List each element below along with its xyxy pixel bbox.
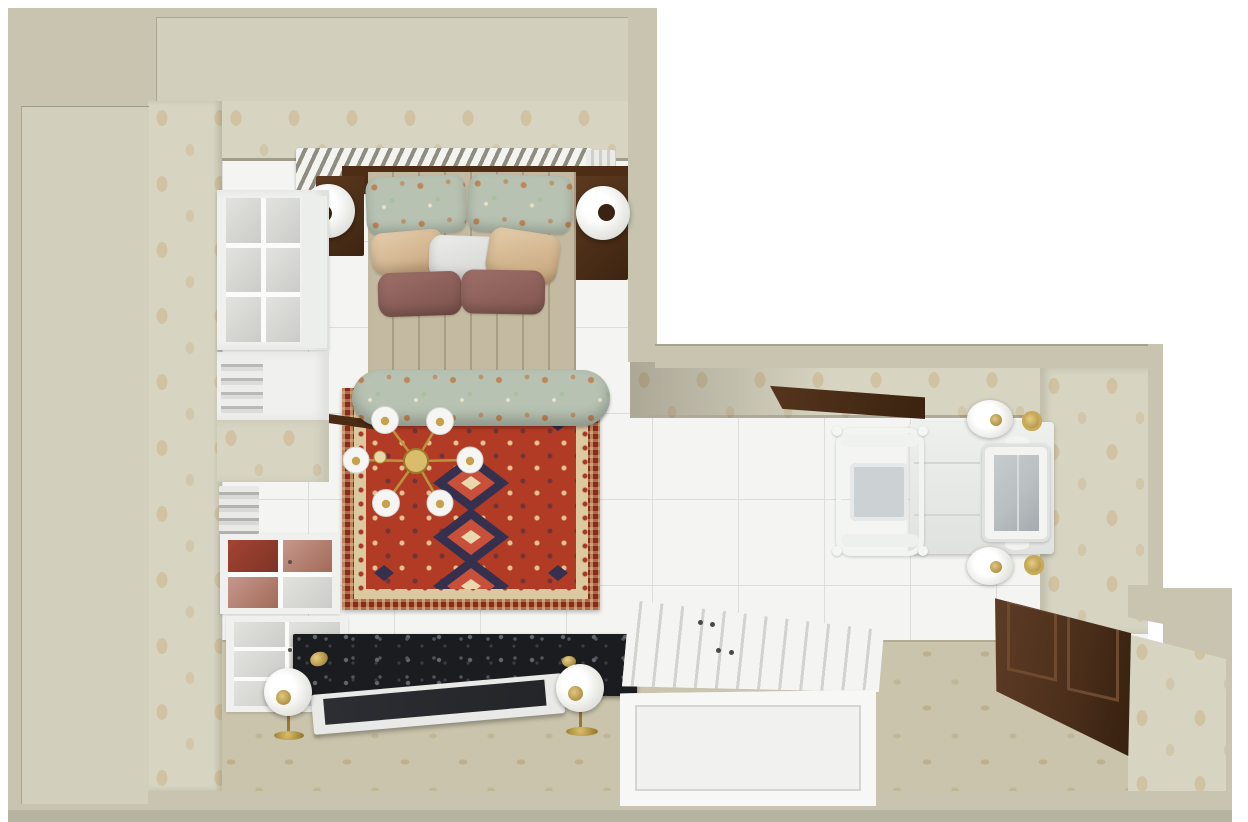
vanity-mirror-glass	[994, 455, 1039, 531]
glass-pane	[228, 577, 278, 609]
vanity-wall-lamp-upper	[967, 400, 1013, 438]
bedroom-left-wallpaper	[148, 100, 222, 791]
cabinet-panel	[1007, 600, 1057, 682]
rug-corner-motif	[374, 565, 394, 581]
chair-finial	[918, 426, 928, 436]
glass-pane	[234, 622, 285, 647]
red-cabinet-glass-grid	[228, 540, 332, 608]
hutch-side-panel	[302, 196, 327, 348]
upholstered-panel	[217, 420, 329, 482]
brass-sconce-plate	[1022, 411, 1042, 431]
floor-plan-render	[0, 0, 1248, 822]
daybed-knob	[729, 650, 734, 655]
chandelier-ball	[374, 451, 386, 463]
rug-corner-motif	[548, 565, 568, 581]
bedside-lamp-right	[576, 186, 630, 240]
vanity-chair	[836, 428, 924, 556]
pillow-floral-left	[365, 174, 467, 235]
glass-pane	[226, 297, 261, 342]
outer-wall-right	[1148, 344, 1163, 590]
exterior-background-top-right	[657, 0, 1248, 344]
pillow-floral-right	[467, 173, 573, 235]
chair-front	[841, 534, 919, 547]
folded-towels	[221, 357, 263, 415]
daybed-knob	[716, 648, 721, 653]
floor-lamp-right	[556, 664, 604, 712]
exterior-background-bottom-right	[1232, 588, 1248, 822]
exterior-background-right	[1163, 344, 1248, 588]
glass-pane	[226, 198, 261, 243]
bedroom-right-wall	[628, 8, 657, 362]
daybed-knob	[710, 622, 715, 627]
glass-pane	[228, 540, 278, 572]
rug-medallion	[433, 557, 509, 589]
pillow-mauve-right	[461, 269, 546, 314]
pillow-mauve-left	[377, 271, 462, 318]
glass-pane	[266, 198, 301, 243]
floor-lamp-base	[274, 731, 304, 740]
outer-wall-left-panel	[21, 106, 149, 804]
glass-pane	[283, 540, 333, 572]
chair-finial	[918, 546, 928, 556]
chair-back	[841, 434, 919, 447]
outer-wall-bottom-edge	[8, 810, 1232, 822]
floor-lamp-left	[264, 668, 312, 716]
chair-finial	[832, 546, 842, 556]
chandelier-hub	[404, 449, 428, 473]
cabinet-knob	[288, 648, 292, 652]
glass-pane	[266, 297, 301, 342]
daybed-front	[620, 690, 876, 806]
outer-wall-top-panel	[156, 17, 636, 101]
cabinet-knob	[288, 560, 292, 564]
chair-finial	[832, 426, 842, 436]
chandelier	[330, 393, 500, 523]
folded-towels	[219, 486, 259, 534]
floor-lamp-base	[566, 727, 598, 736]
chair-cushion	[850, 463, 908, 521]
daybed-knob	[698, 620, 703, 625]
vanity-wall-lamp-lower	[967, 547, 1013, 585]
brass-sconce-plate	[1024, 555, 1044, 575]
glass-pane	[226, 248, 261, 293]
glass-pane	[266, 248, 301, 293]
dressing-top-wall	[655, 344, 1163, 368]
hutch-glass-grid	[226, 198, 300, 342]
glass-pane	[283, 577, 333, 609]
bumpout-wallpaper	[1128, 634, 1226, 791]
